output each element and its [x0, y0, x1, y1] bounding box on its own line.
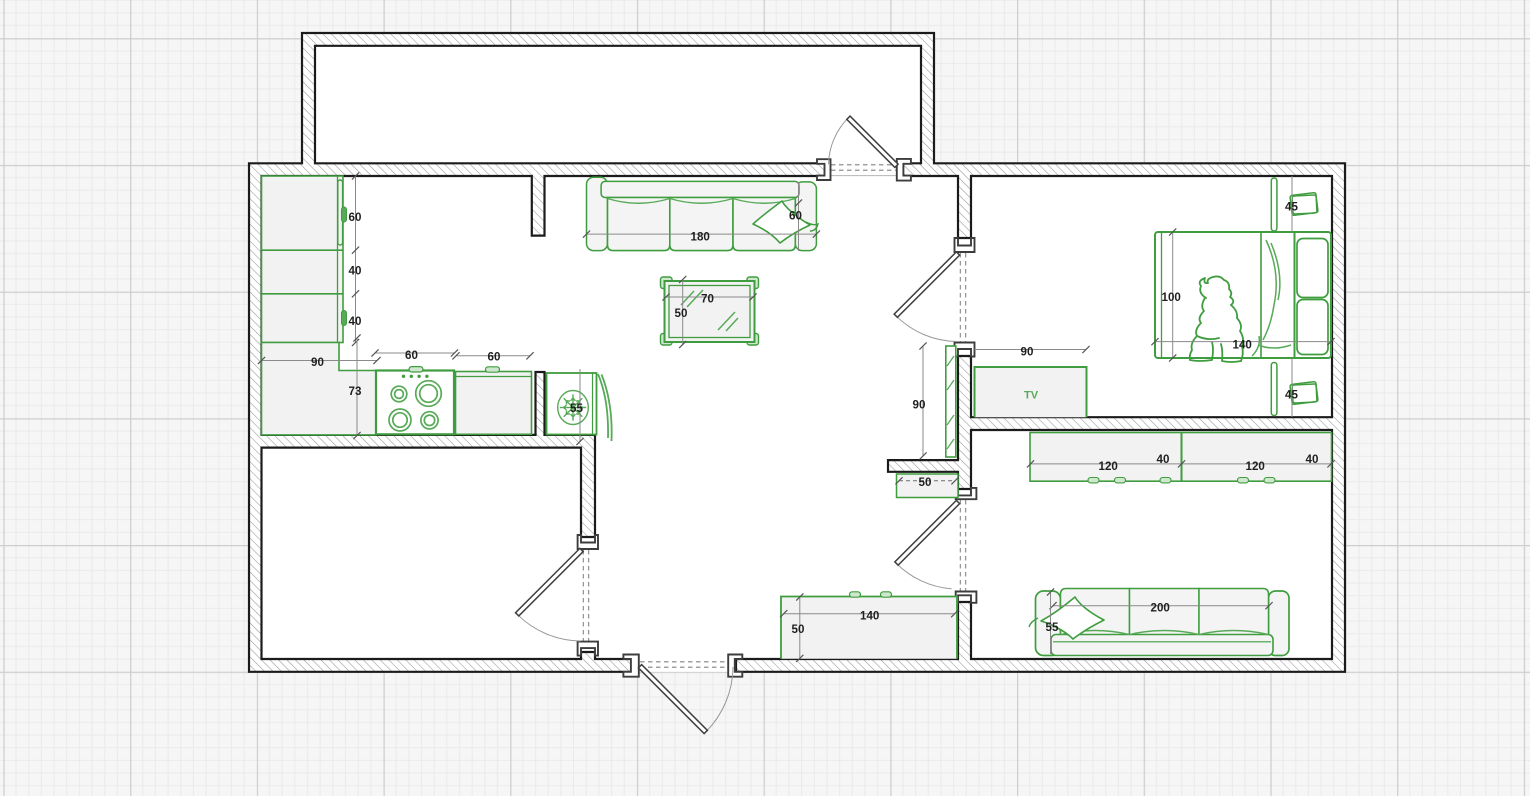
- svg-text:60: 60: [789, 210, 802, 223]
- svg-text:90: 90: [1021, 346, 1034, 359]
- svg-text:40: 40: [1157, 453, 1170, 466]
- svg-text:50: 50: [792, 623, 805, 636]
- svg-text:60: 60: [349, 211, 362, 224]
- svg-text:40: 40: [1306, 453, 1319, 466]
- svg-text:60: 60: [405, 349, 418, 362]
- svg-text:45: 45: [1285, 201, 1298, 214]
- svg-text:140: 140: [860, 610, 879, 623]
- svg-text:40: 40: [349, 265, 362, 278]
- svg-text:120: 120: [1099, 460, 1118, 473]
- svg-text:45: 45: [1285, 389, 1298, 402]
- svg-text:55: 55: [570, 402, 583, 415]
- svg-text:70: 70: [701, 293, 714, 306]
- svg-text:100: 100: [1162, 291, 1181, 304]
- svg-text:90: 90: [311, 356, 324, 369]
- svg-text:60: 60: [488, 351, 501, 364]
- svg-text:180: 180: [691, 231, 710, 244]
- svg-text:50: 50: [919, 476, 932, 489]
- svg-text:40: 40: [349, 315, 362, 328]
- svg-text:73: 73: [349, 385, 362, 398]
- svg-text:90: 90: [913, 399, 926, 412]
- svg-text:55: 55: [1046, 621, 1059, 634]
- svg-text:120: 120: [1246, 460, 1265, 473]
- svg-text:140: 140: [1233, 339, 1252, 352]
- svg-text:50: 50: [675, 307, 688, 320]
- svg-text:TV: TV: [1024, 390, 1039, 402]
- svg-text:200: 200: [1151, 602, 1170, 615]
